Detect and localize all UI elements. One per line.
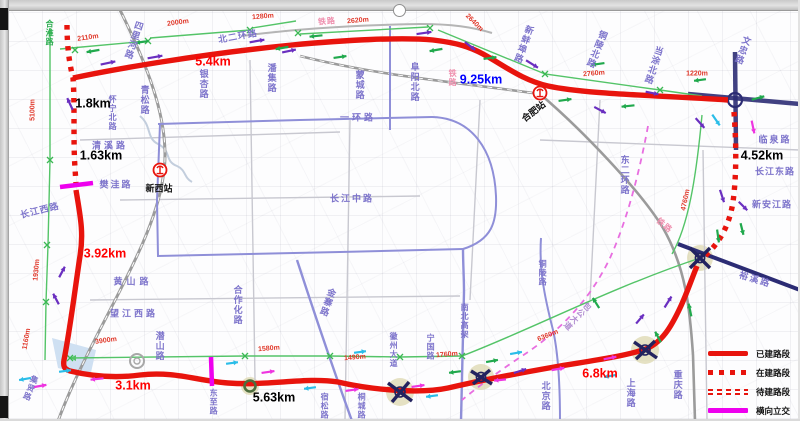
segment-length-label: 9.25km — [460, 74, 502, 87]
road-label: 宁国路 — [426, 334, 434, 361]
measure-label: 2640m — [464, 13, 485, 34]
legend-swatch-under-construction — [708, 370, 748, 375]
road-label: 铜陵路 — [538, 260, 546, 287]
road-label: 一环路 — [340, 113, 376, 122]
legend-swatch-transverse — [708, 408, 748, 413]
legend-label: 在建路段 — [756, 367, 790, 379]
measure-label: 6360m — [537, 329, 560, 344]
station-label: 新西站 — [145, 184, 172, 193]
road-label: 铜陵北路 — [584, 29, 608, 70]
road-label: 樊洼路 — [99, 180, 132, 189]
station-label: 合肥站 — [520, 100, 547, 124]
rail-label: 铁路 — [654, 217, 673, 235]
measure-label: 1220m — [686, 70, 708, 77]
resize-handle-icon[interactable] — [393, 4, 406, 17]
legend-row-transverse: 横向立交 — [708, 401, 790, 420]
rail-label: 铁路 — [318, 17, 337, 27]
road-label: 集贤路 — [21, 374, 39, 402]
rail-label: 铁路 — [448, 69, 456, 87]
legend-label: 已建路段 — [756, 348, 790, 360]
road-label: 宿松路 — [320, 393, 328, 420]
road-label: 四里河路 — [122, 20, 143, 61]
road-label: 新安江路 — [752, 200, 792, 209]
measure-label: 2620m — [347, 16, 369, 25]
frame-bottom-block — [0, 396, 8, 418]
road-label: 潘集路 — [266, 63, 275, 93]
segment-length-label: 6.8km — [582, 368, 617, 381]
road-label: 当涂北路 — [642, 45, 663, 86]
road-label: 长江西路 — [19, 202, 60, 221]
road-label: 裕溪路 — [738, 271, 772, 290]
map-labels: 合淮路四里河路北二环路潘集路银杏路青松路怀宁北路清溪路樊洼路蒙城路阜阳北路新蚌埠… — [0, 0, 800, 421]
road-label: 文忠路 — [732, 34, 751, 65]
measure-label: 5100m — [29, 99, 36, 121]
measure-label: 1160m — [22, 328, 33, 350]
frame-top-block — [0, 8, 8, 30]
segment-length-label: 5.63km — [253, 392, 295, 405]
frame-left-bar — [0, 0, 9, 421]
measure-label: 3900m — [95, 336, 118, 346]
road-label: 临泉路 — [758, 135, 791, 144]
legend-row-built: 已建路段 — [708, 344, 790, 363]
road-label: 长江东路 — [755, 167, 795, 176]
road-label: 合淮路 — [45, 20, 53, 47]
road-label: 望江西路 — [110, 309, 158, 318]
measure-label: 2000m — [167, 18, 190, 28]
road-label: 银杏路 — [198, 69, 207, 99]
map-legend: 已建路段 在建路段 待建路段 横向立交 — [708, 344, 790, 420]
legend-label: 待建路段 — [756, 386, 790, 398]
slide-canvas: 合淮路四里河路北二环路潘集路银杏路青松路怀宁北路清溪路樊洼路蒙城路阜阳北路新蚌埠… — [0, 0, 800, 421]
measure-label: 1280m — [252, 12, 274, 21]
road-label: 黄山路 — [113, 277, 152, 286]
segment-length-label: 1.8km — [75, 98, 110, 111]
road-label: 桐城路 — [357, 393, 365, 420]
road-label: 长江中路 — [330, 194, 374, 203]
road-label: 北二环路 — [217, 29, 258, 45]
road-label: 青松路 — [139, 85, 148, 115]
road-label: 新蚌埠路 — [512, 24, 534, 65]
road-label: 南北高架 — [460, 303, 468, 339]
measure-label: 1930m — [32, 259, 41, 281]
road-label: 包公大道 — [561, 300, 592, 331]
segment-length-label: 4.52km — [741, 150, 783, 163]
road-label: 东至路 — [209, 389, 217, 416]
road-label: 北京路 — [540, 381, 549, 411]
road-label: 蒙城路 — [354, 70, 363, 100]
legend-label: 横向立交 — [756, 405, 790, 417]
segment-length-label: 3.1km — [115, 380, 150, 393]
road-label: 东二环路 — [619, 155, 628, 195]
road-label: 潜山路 — [154, 331, 163, 361]
measure-label: 1580m — [258, 344, 280, 353]
legend-row-planned: 待建路段 — [708, 382, 790, 401]
measure-label: 4760m — [680, 189, 692, 212]
road-label: 徽州大道 — [389, 332, 397, 368]
measure-label: 1490m — [344, 353, 366, 362]
segment-length-label: 3.92km — [84, 248, 126, 261]
road-label: 重庆路 — [672, 370, 681, 400]
road-label: 金寨路 — [317, 286, 336, 317]
road-label: 上海路 — [625, 378, 634, 408]
road-label: 阜阳北路 — [409, 62, 418, 102]
segment-length-label: 5.4km — [195, 56, 230, 69]
measure-label: 2110m — [77, 33, 99, 43]
legend-row-under-construction: 在建路段 — [708, 363, 790, 382]
segment-length-label: 1.63km — [80, 150, 122, 163]
measure-label: 1760m — [436, 350, 458, 359]
measure-label: 2760m — [583, 69, 605, 78]
legend-swatch-built — [708, 351, 748, 356]
road-label: 合作化路 — [232, 285, 241, 325]
legend-swatch-planned — [708, 389, 748, 395]
